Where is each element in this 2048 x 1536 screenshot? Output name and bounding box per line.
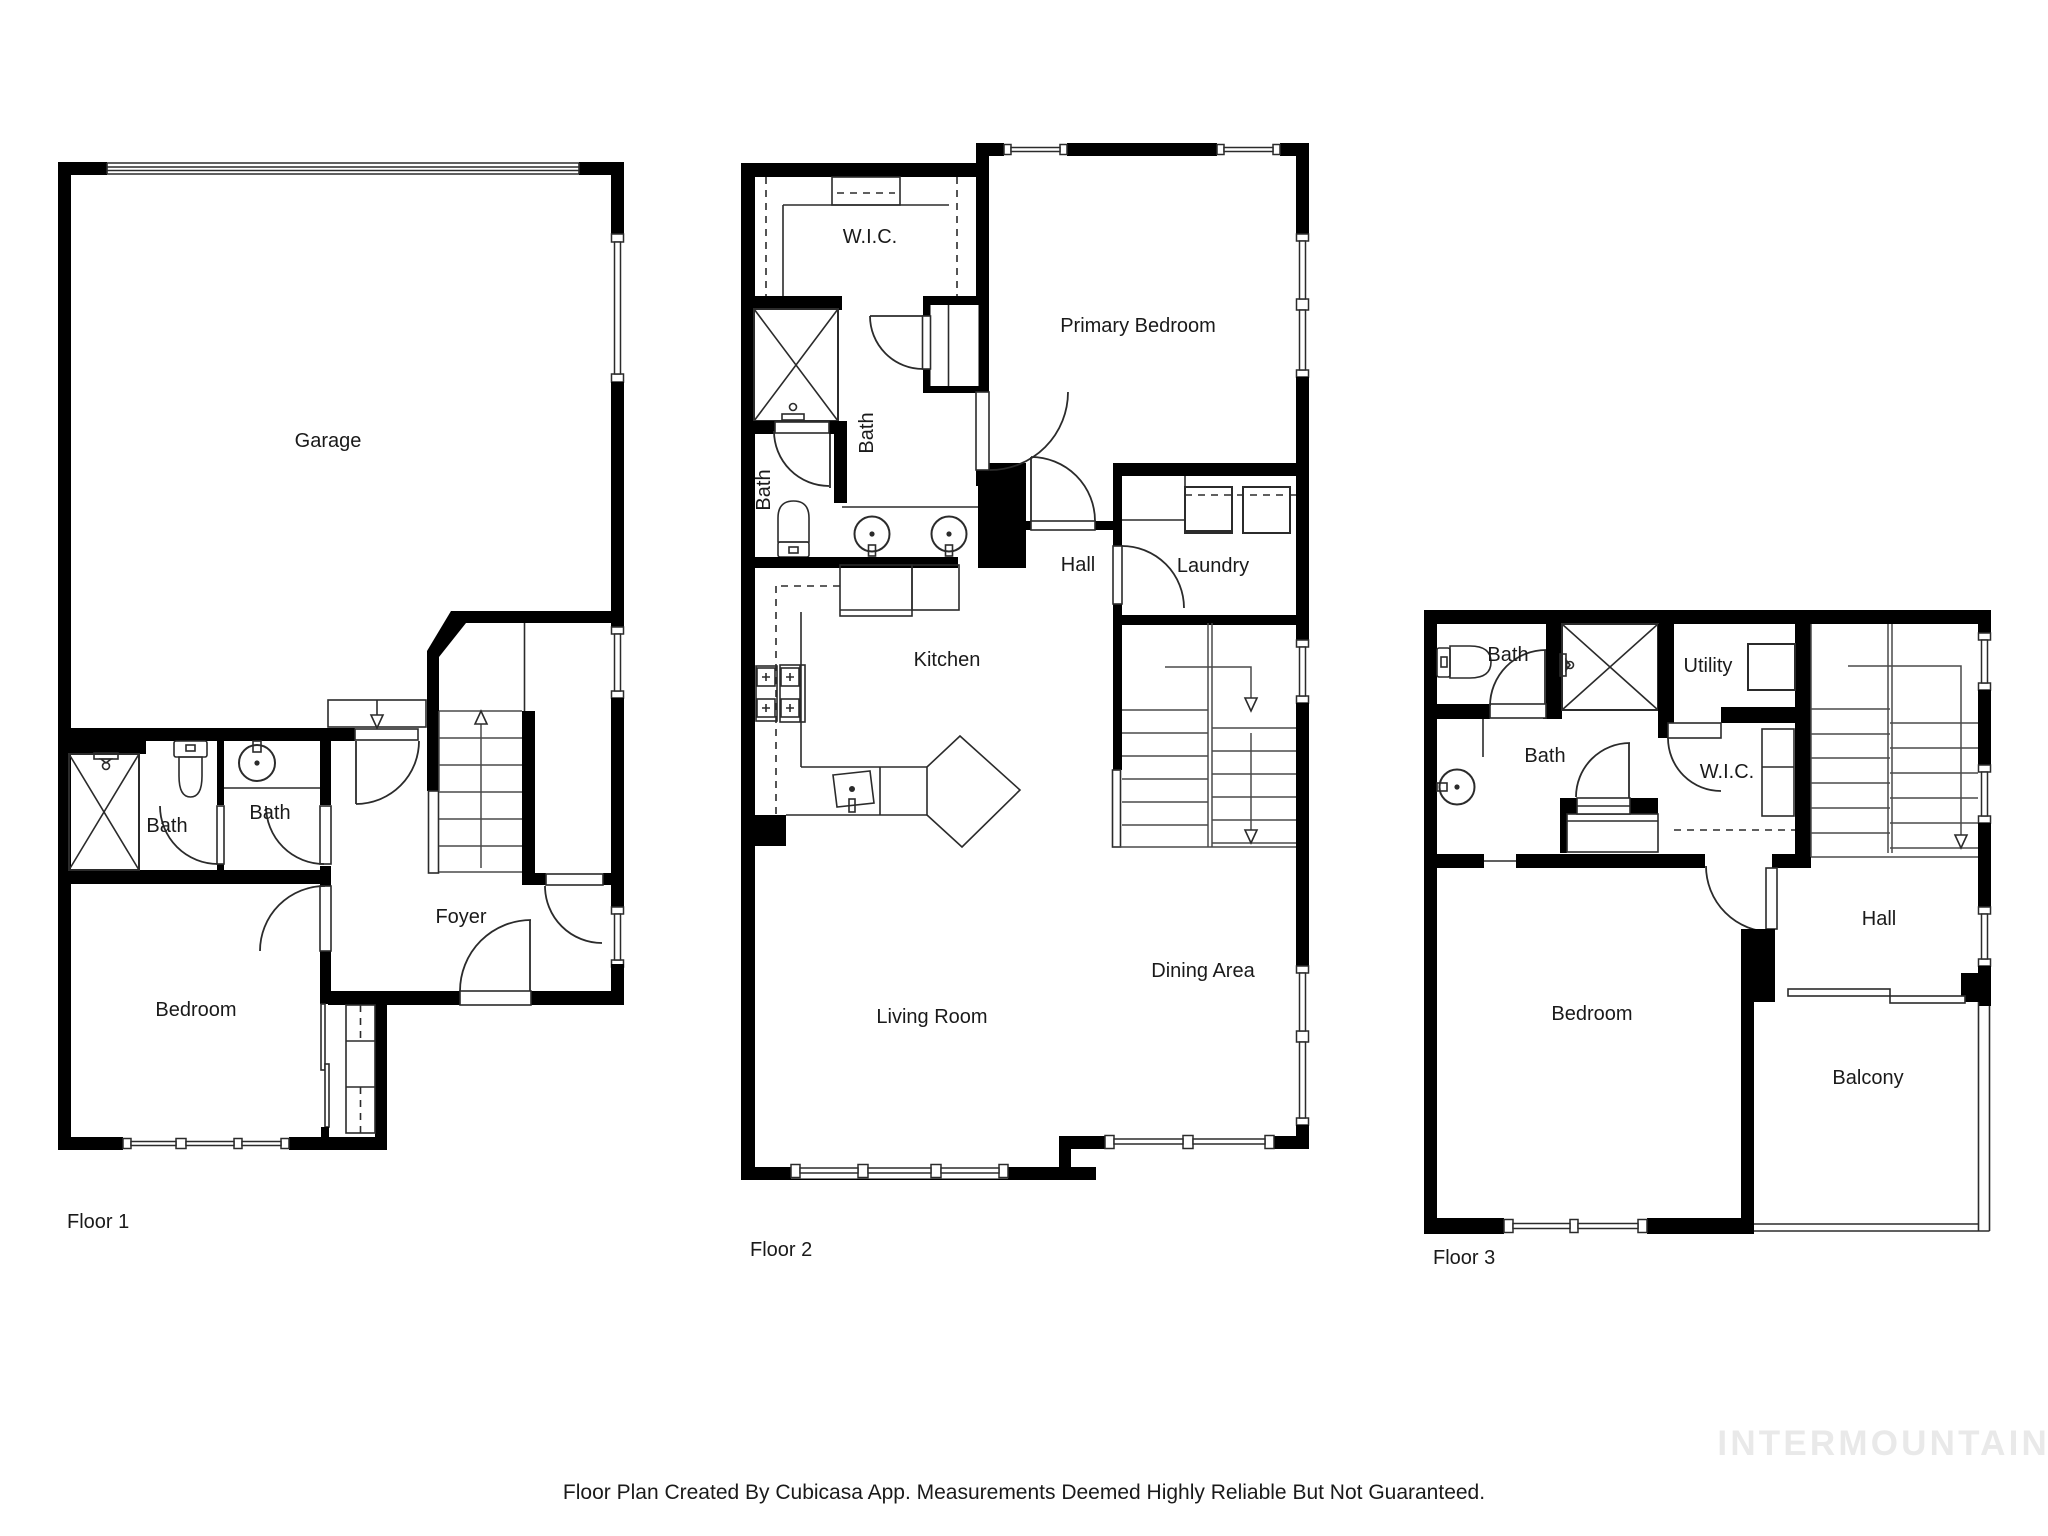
svg-text:Bath: Bath [753, 469, 775, 510]
svg-text:Dining Area: Dining Area [1151, 960, 1255, 982]
svg-text:Floor 3: Floor 3 [1433, 1247, 1495, 1269]
svg-text:Garage: Garage [295, 430, 362, 452]
svg-text:Bath: Bath [249, 802, 290, 824]
svg-text:Bath: Bath [1487, 644, 1528, 666]
svg-text:Bath: Bath [856, 412, 878, 453]
svg-text:Bath: Bath [146, 815, 187, 837]
svg-text:Utility: Utility [1684, 655, 1733, 677]
svg-text:W.I.C.: W.I.C. [843, 226, 897, 248]
svg-text:Laundry: Laundry [1177, 555, 1249, 577]
svg-text:Primary Bedroom: Primary Bedroom [1060, 315, 1216, 337]
svg-text:Hall: Hall [1862, 908, 1896, 930]
svg-text:Floor 1: Floor 1 [67, 1211, 129, 1233]
svg-text:Bath: Bath [1524, 745, 1565, 767]
svg-text:Floor Plan Created By Cubicasa: Floor Plan Created By Cubicasa App. Meas… [563, 1481, 1485, 1504]
svg-text:Balcony: Balcony [1832, 1067, 1903, 1089]
svg-text:W.I.C.: W.I.C. [1700, 761, 1754, 783]
svg-text:INTERMOUNTAIN: INTERMOUNTAIN [1717, 1424, 2048, 1463]
svg-text:Kitchen: Kitchen [914, 649, 981, 671]
svg-text:Bedroom: Bedroom [155, 999, 236, 1021]
svg-text:Foyer: Foyer [435, 906, 486, 928]
svg-text:Floor 2: Floor 2 [750, 1239, 812, 1261]
svg-text:Living Room: Living Room [876, 1006, 987, 1028]
svg-text:Hall: Hall [1061, 554, 1095, 576]
svg-text:Bedroom: Bedroom [1551, 1003, 1632, 1025]
